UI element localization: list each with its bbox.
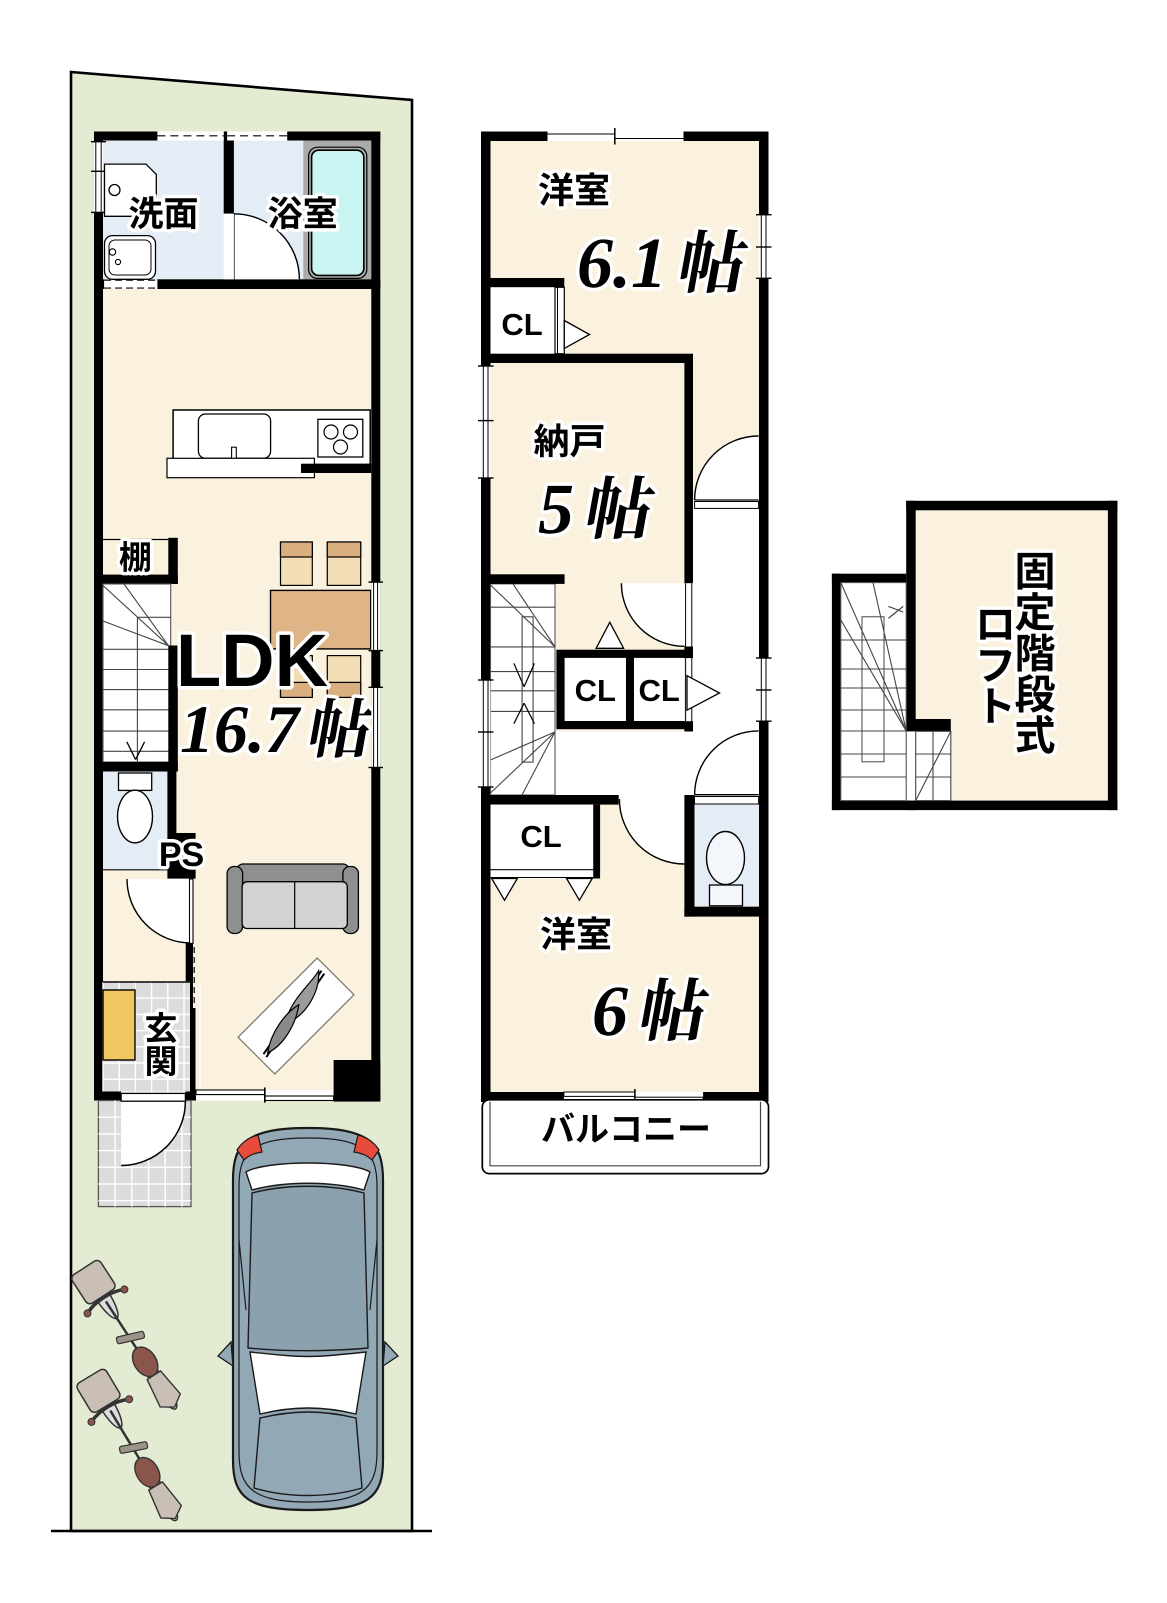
svg-text:LDK: LDK	[176, 619, 328, 702]
svg-text:CL: CL	[639, 673, 680, 708]
svg-text:PS: PS	[159, 836, 204, 874]
svg-text:CL: CL	[501, 307, 542, 342]
svg-text:CL: CL	[575, 673, 616, 708]
svg-text:CL: CL	[520, 819, 561, 854]
